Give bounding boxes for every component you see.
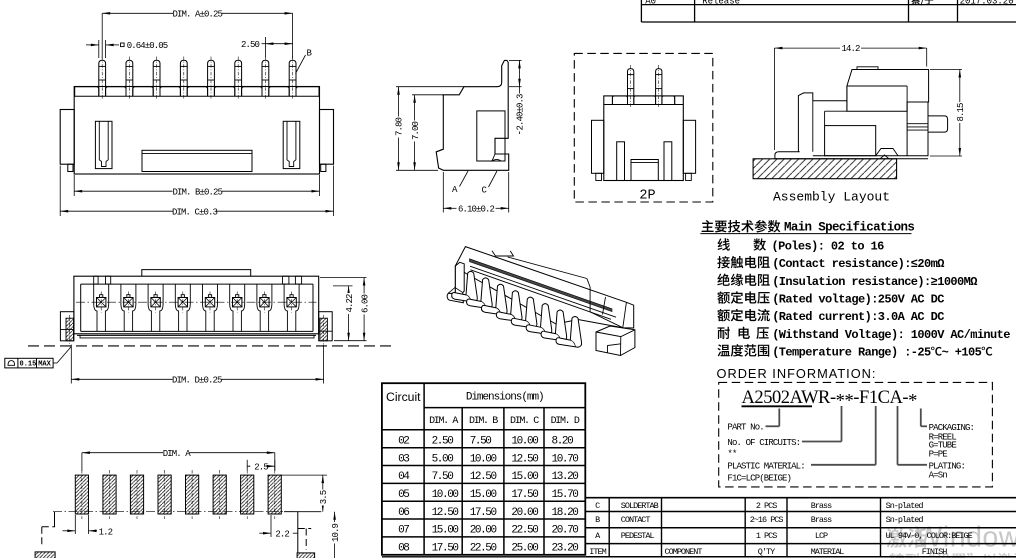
svg-text:(Insulation resistance):≥1000M: (Insulation resistance):≥1000MΩ: [772, 275, 977, 289]
svg-text:22.50: 22.50: [470, 543, 497, 555]
svg-text:0.15: 0.15: [20, 361, 37, 369]
svg-text:DIM. C±0.3: DIM. C±0.3: [172, 208, 218, 218]
svg-text:18.20: 18.20: [552, 507, 579, 519]
svg-text:A: A: [452, 185, 458, 195]
svg-text:1.2: 1.2: [99, 527, 113, 537]
svg-text:F1C=LCP(BEIGE): F1C=LCP(BEIGE): [727, 473, 791, 483]
svg-text:10.00: 10.00: [470, 453, 497, 465]
svg-text:13.20: 13.20: [552, 471, 579, 483]
svg-text:Sn-plated: Sn-plated: [886, 501, 924, 511]
svg-text:23.20: 23.20: [552, 543, 579, 555]
svg-text:1 PCS: 1 PCS: [756, 531, 777, 541]
svg-text:DIM. A: DIM. A: [163, 449, 192, 459]
svg-text:15.00: 15.00: [511, 471, 538, 483]
svg-text:05: 05: [398, 489, 409, 501]
svg-text:2 PCS: 2 PCS: [756, 501, 777, 511]
svg-text:DIM. D: DIM. D: [551, 416, 580, 427]
svg-text:20.00: 20.00: [470, 525, 497, 537]
svg-text:17.50: 17.50: [470, 507, 497, 519]
svg-text:06: 06: [398, 507, 409, 519]
svg-text:3.5: 3.5: [319, 490, 329, 504]
svg-text:~ +105: ~ +105: [942, 346, 982, 360]
svg-text:Main Specifications: Main Specifications: [784, 221, 914, 235]
svg-text:A=Sn: A=Sn: [929, 471, 948, 481]
svg-text:UL 94V-0, COLOR:BEIGE: UL 94V-0, COLOR:BEIGE: [886, 531, 973, 541]
svg-text:20.70: 20.70: [552, 525, 579, 537]
svg-text:Assembly Layout: Assembly Layout: [773, 190, 890, 205]
svg-text:DIM. A: DIM. A: [429, 416, 458, 427]
svg-text:20.00: 20.00: [511, 507, 538, 519]
svg-text:COMPONENT: COMPONENT: [665, 547, 703, 557]
svg-text:MATERIAL: MATERIAL: [811, 547, 845, 557]
svg-text:Circuit: Circuit: [386, 390, 421, 404]
svg-text:DIM. B: DIM. B: [469, 416, 498, 427]
svg-text:14.2: 14.2: [841, 44, 860, 54]
svg-text:8.15: 8.15: [956, 103, 966, 122]
svg-text:10.70: 10.70: [552, 453, 579, 465]
svg-text:Brass: Brass: [811, 501, 832, 511]
svg-text:6.00: 6.00: [360, 295, 370, 314]
svg-text:25.00: 25.00: [511, 543, 538, 555]
svg-text:5.00: 5.00: [432, 453, 454, 465]
svg-text:P=PE: P=PE: [929, 450, 948, 460]
svg-text:10.00: 10.00: [511, 435, 538, 447]
svg-text:22.50: 22.50: [511, 525, 538, 537]
svg-text:(Rated current):3.0A AC DC: (Rated current):3.0A AC DC: [772, 310, 944, 324]
svg-text:(Poles): 02 to 16: (Poles): 02 to 16: [772, 240, 885, 254]
svg-text:2017.03.20: 2017.03.20: [960, 0, 1014, 6]
svg-text:(Rated voltage):250V AC DC: (Rated voltage):250V AC DC: [772, 293, 944, 307]
svg-text:12.50: 12.50: [470, 471, 497, 483]
svg-text:17.50: 17.50: [511, 489, 538, 501]
svg-text:A2502AWR-**-F1CA-*: A2502AWR-**-F1CA-*: [742, 388, 918, 411]
svg-text:15.00: 15.00: [470, 489, 497, 501]
svg-text:**: **: [727, 449, 737, 459]
svg-text:Dimensions(mm): Dimensions(mm): [466, 392, 544, 404]
svg-text:2.40±0.3: 2.40±0.3: [516, 94, 526, 131]
svg-text:2.5: 2.5: [254, 462, 268, 472]
svg-text:Brass: Brass: [811, 515, 832, 525]
svg-text:ORDER INFORMATION:: ORDER INFORMATION:: [717, 366, 877, 381]
svg-text:(Withstand Voltage): 1000V AC/: (Withstand Voltage): 1000V AC/minute: [772, 328, 1010, 342]
svg-text:2P: 2P: [639, 189, 655, 204]
svg-text:0.64±0.05: 0.64±0.05: [127, 41, 168, 51]
svg-text:DIM. D±0.25: DIM. D±0.25: [172, 375, 222, 385]
svg-text:04: 04: [398, 471, 410, 483]
svg-text:PEDESTAL: PEDESTAL: [621, 531, 655, 541]
svg-text:DIM. C: DIM. C: [510, 416, 539, 427]
svg-text:SOLDERTAB: SOLDERTAB: [621, 501, 659, 511]
svg-text:PLASTIC MATERIAL:: PLASTIC MATERIAL:: [727, 461, 804, 471]
svg-text:7.50: 7.50: [432, 471, 454, 483]
svg-text:(Contact resistance):≤20mΩ: (Contact resistance):≤20mΩ: [772, 257, 944, 271]
svg-text:7.00: 7.00: [411, 122, 421, 141]
svg-text:10.9: 10.9: [331, 524, 341, 543]
svg-text:DIM. A±0.25: DIM. A±0.25: [172, 10, 222, 20]
svg-text:15.70: 15.70: [552, 489, 579, 501]
svg-text:2.50: 2.50: [432, 435, 454, 447]
svg-text:07: 07: [398, 525, 409, 537]
svg-text:FINISH: FINISH: [922, 547, 948, 557]
svg-text:MAX: MAX: [38, 361, 51, 369]
svg-text:02: 02: [398, 435, 409, 447]
svg-text:6.10±0.2: 6.10±0.2: [458, 205, 495, 215]
svg-text:(Temperature Range) :-25: (Temperature Range) :-25: [772, 346, 931, 360]
svg-text:No. OF CIRCUITS:: No. OF CIRCUITS:: [727, 438, 800, 448]
svg-text:2~16 PCS: 2~16 PCS: [750, 515, 784, 525]
svg-text:Sn-plated: Sn-plated: [886, 515, 924, 525]
svg-text:DIM. B±0.25: DIM. B±0.25: [172, 188, 222, 198]
svg-text:C: C: [482, 186, 488, 196]
svg-text:17.50: 17.50: [432, 543, 459, 555]
svg-text:PART No.: PART No.: [727, 423, 763, 433]
svg-text:CONTACT: CONTACT: [621, 515, 651, 525]
svg-text:B: B: [307, 49, 313, 59]
svg-text:8.20: 8.20: [552, 435, 574, 447]
svg-text:LCP: LCP: [815, 531, 828, 541]
svg-text:7.50: 7.50: [470, 435, 492, 447]
svg-text:Q'TY: Q'TY: [758, 547, 775, 557]
svg-text:4.22: 4.22: [345, 294, 355, 313]
svg-text:12.50: 12.50: [432, 507, 459, 519]
svg-text:15.00: 15.00: [432, 525, 459, 537]
svg-text:7.80: 7.80: [395, 118, 405, 137]
svg-text:12.50: 12.50: [511, 453, 538, 465]
svg-text:10.00: 10.00: [432, 489, 459, 501]
svg-text:2.50: 2.50: [241, 40, 260, 50]
svg-text:ITEM: ITEM: [589, 547, 606, 557]
svg-text:03: 03: [398, 453, 409, 465]
svg-text:2.2: 2.2: [275, 530, 289, 540]
svg-text:A0: A0: [645, 0, 656, 6]
svg-text:08: 08: [398, 543, 409, 555]
svg-text:Release: Release: [702, 0, 740, 6]
